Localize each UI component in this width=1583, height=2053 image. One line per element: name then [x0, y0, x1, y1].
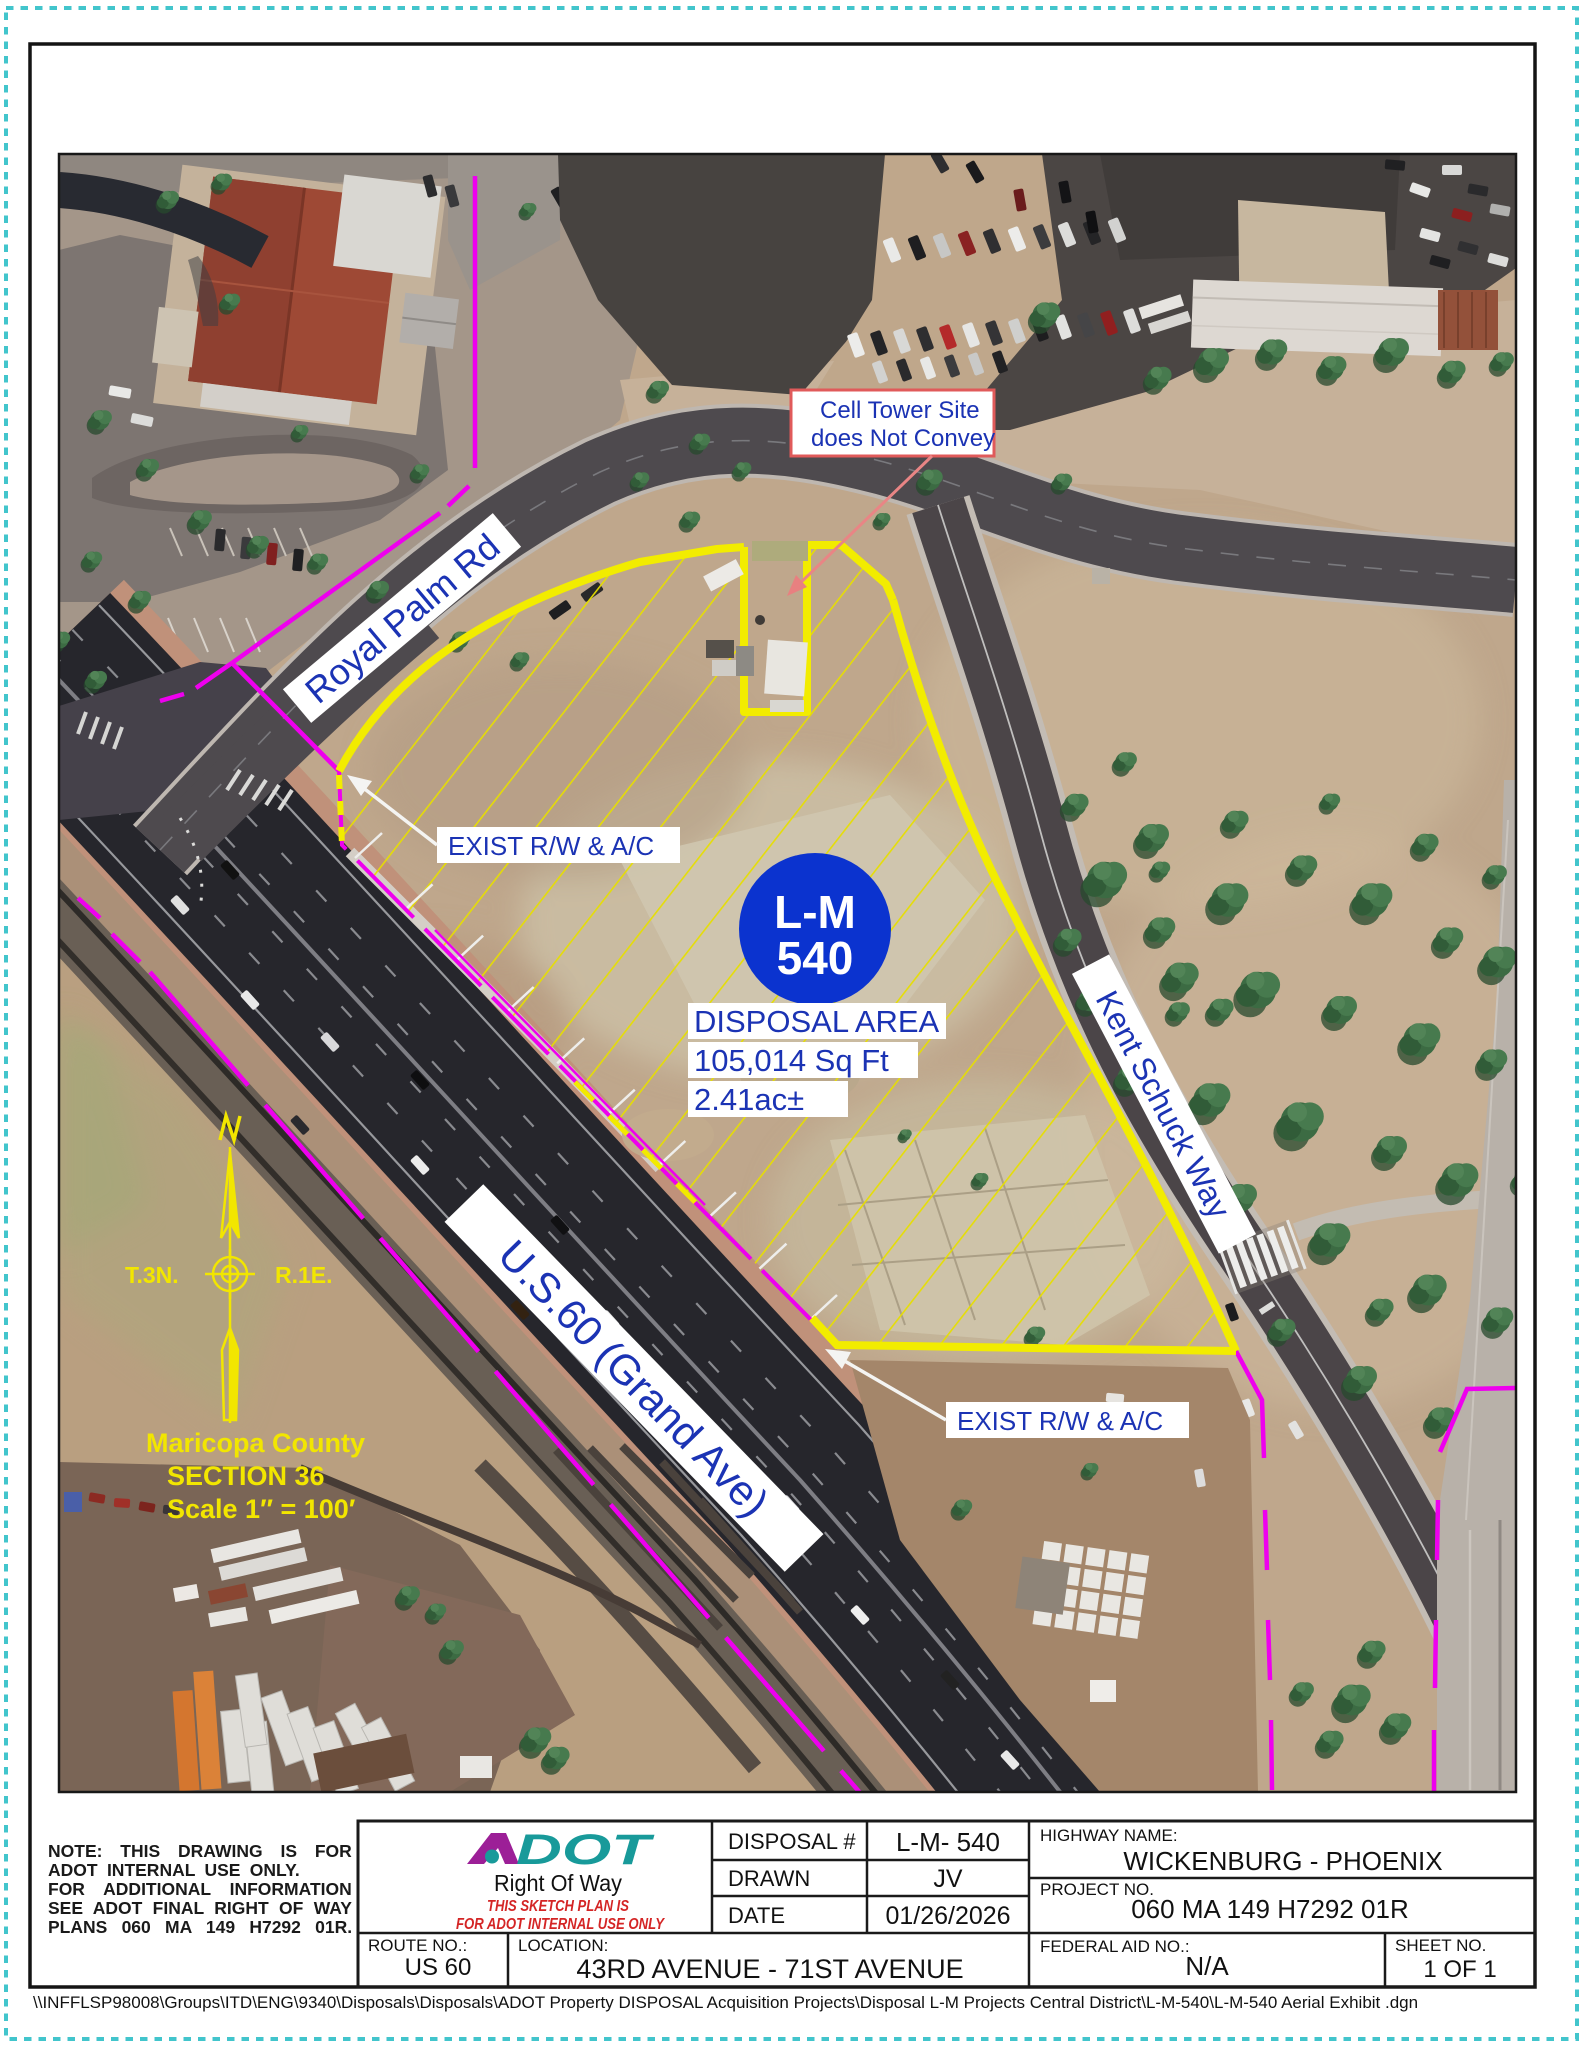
svg-text:ROUTE NO.:: ROUTE NO.: [368, 1936, 467, 1955]
svg-text:DRAWN: DRAWN [728, 1866, 810, 1891]
svg-text:L-M: L-M [774, 886, 856, 938]
svg-text:Right Of Way: Right Of Way [494, 1870, 622, 1896]
svg-text:L-M- 540: L-M- 540 [896, 1827, 1000, 1857]
svg-text:1 OF 1: 1 OF 1 [1423, 1956, 1496, 1983]
svg-text:DOT: DOT [516, 1826, 655, 1874]
svg-text:DISPOSAL #: DISPOSAL # [728, 1829, 856, 1854]
svg-text:DATE: DATE [728, 1903, 785, 1928]
svg-text:N/A: N/A [1185, 1951, 1229, 1981]
svg-text:EXIST R/W & A/C: EXIST R/W & A/C [957, 1406, 1163, 1436]
svg-text:PLANS 060 MA 149 H7292 01R.: PLANS 060 MA 149 H7292 01R. [48, 1917, 352, 1937]
svg-text:JV: JV [933, 1865, 963, 1893]
svg-text:does Not Convey: does Not Convey [811, 425, 995, 452]
svg-text:T.3N.: T.3N. [125, 1262, 179, 1288]
svg-text:DISPOSAL AREA: DISPOSAL AREA [694, 1004, 940, 1039]
svg-text:SEE ADOT FINAL RIGHT OF WAY: SEE ADOT FINAL RIGHT OF WAY [48, 1898, 352, 1918]
svg-text:43RD AVENUE - 71ST AVENUE: 43RD AVENUE - 71ST AVENUE [576, 1954, 963, 1984]
svg-text:US 60: US 60 [405, 1954, 472, 1981]
svg-text:SHEET NO.: SHEET NO. [1395, 1936, 1486, 1955]
svg-text:ADOT INTERNAL USE ONLY.: ADOT INTERNAL USE ONLY. [48, 1860, 300, 1880]
svg-text:540: 540 [777, 932, 854, 984]
svg-text:01/26/2026: 01/26/2026 [885, 1902, 1010, 1930]
svg-text:SECTION 36: SECTION 36 [167, 1461, 325, 1491]
svg-text:FOR ADDITIONAL INFORMATION: FOR ADDITIONAL INFORMATION [48, 1879, 352, 1899]
svg-text:2.41ac±: 2.41ac± [694, 1082, 804, 1117]
svg-text:NOTE: THIS DRAWING IS FOR: NOTE: THIS DRAWING IS FOR [48, 1841, 352, 1861]
svg-text:Scale 1″ = 100′: Scale 1″ = 100′ [167, 1494, 355, 1524]
svg-text:Cell Tower Site: Cell Tower Site [820, 397, 980, 424]
svg-text:WICKENBURG - PHOENIX: WICKENBURG - PHOENIX [1123, 1846, 1442, 1876]
svg-text:\\INFFLSP98008\Groups\ITD\ENG\: \\INFFLSP98008\Groups\ITD\ENG\9340\Dispo… [33, 1993, 1418, 2012]
svg-text:105,014 Sq Ft: 105,014 Sq Ft [694, 1043, 889, 1078]
svg-text:FOR ADOT INTERNAL USE ONLY: FOR ADOT INTERNAL USE ONLY [456, 1916, 665, 1933]
svg-text:Maricopa County: Maricopa County [146, 1428, 365, 1458]
svg-text:THIS SKETCH PLAN IS: THIS SKETCH PLAN IS [487, 1898, 630, 1915]
svg-text:EXIST R/W & A/C: EXIST R/W & A/C [448, 831, 654, 861]
svg-text:HIGHWAY NAME:: HIGHWAY NAME: [1040, 1826, 1178, 1845]
svg-text:FEDERAL AID NO.:: FEDERAL AID NO.: [1040, 1937, 1190, 1956]
svg-text:R.1E.: R.1E. [275, 1262, 333, 1288]
svg-text:060 MA 149 H7292 01R: 060 MA 149 H7292 01R [1131, 1894, 1409, 1924]
svg-text:LOCATION:: LOCATION: [518, 1936, 608, 1955]
